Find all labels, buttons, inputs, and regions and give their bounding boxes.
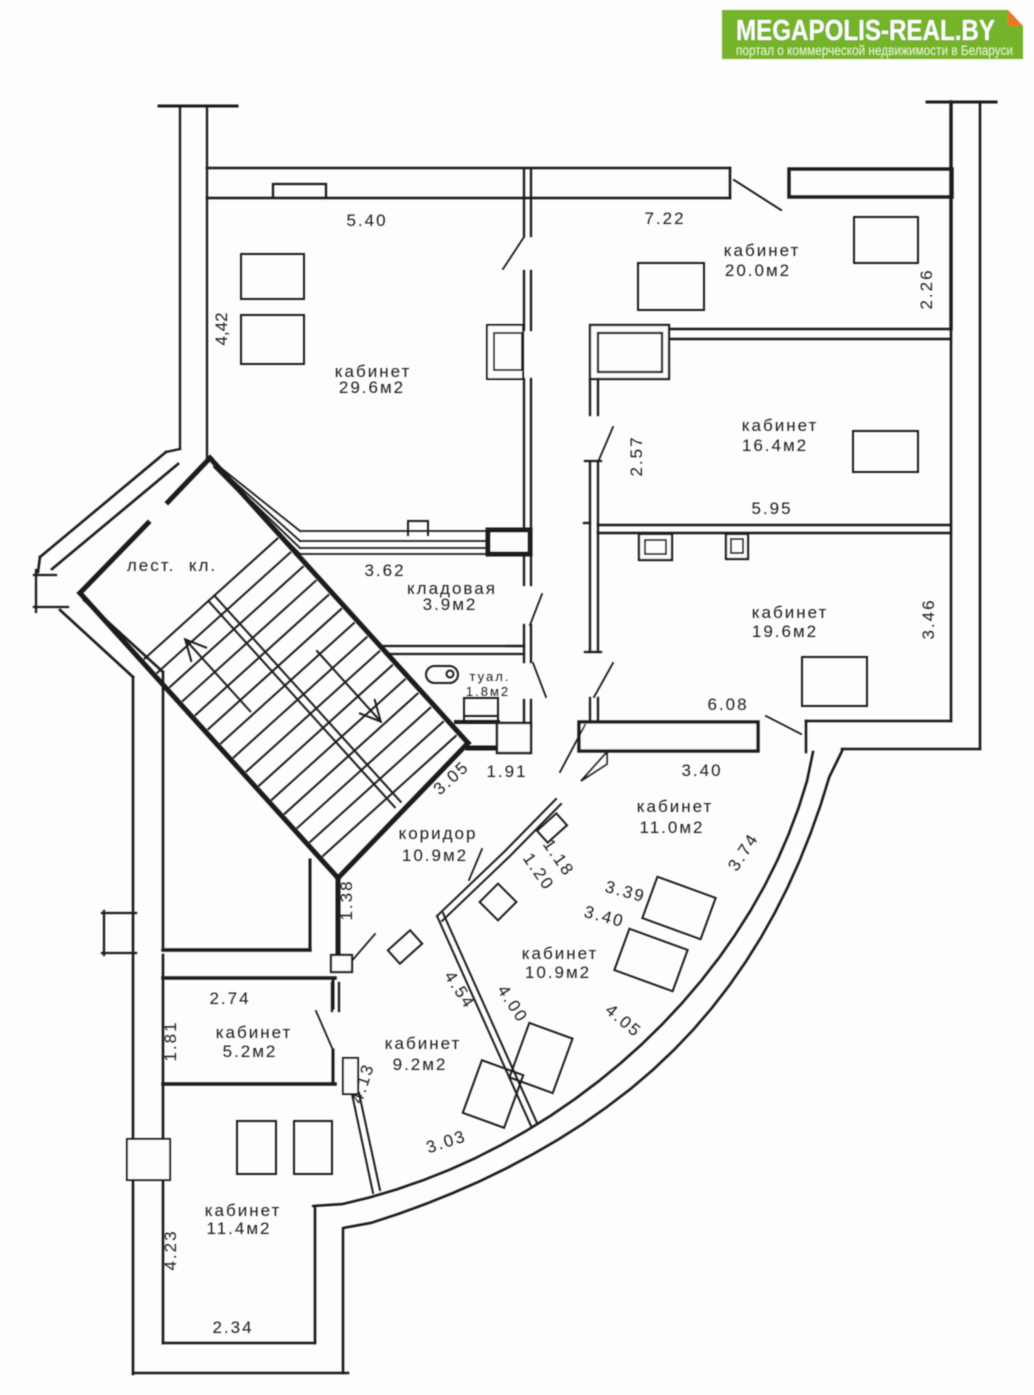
svg-text:20.0м2: 20.0м2 bbox=[725, 261, 791, 280]
svg-text:16.4м2: 16.4м2 bbox=[742, 436, 808, 455]
svg-text:кабинет: кабинет bbox=[742, 416, 819, 435]
svg-text:7.22: 7.22 bbox=[644, 209, 685, 228]
svg-text:1.81: 1.81 bbox=[161, 1020, 180, 1061]
svg-text:1.91: 1.91 bbox=[486, 762, 527, 781]
svg-text:2.26: 2.26 bbox=[917, 268, 936, 309]
svg-text:3.46: 3.46 bbox=[919, 598, 938, 639]
svg-text:2.74: 2.74 bbox=[209, 989, 250, 1008]
svg-text:1.38: 1.38 bbox=[337, 879, 356, 920]
svg-text:кабинет: кабинет bbox=[205, 1201, 282, 1220]
svg-text:портал о коммерческой недвижим: портал о коммерческой недвижимости в Бел… bbox=[736, 43, 1013, 58]
svg-text:коридор: коридор bbox=[399, 824, 478, 843]
svg-text:лест. кл.: лест. кл. bbox=[127, 556, 217, 575]
svg-text:3.40: 3.40 bbox=[681, 761, 722, 780]
svg-text:5.2м2: 5.2м2 bbox=[223, 1042, 278, 1061]
svg-text:кабинет: кабинет bbox=[216, 1023, 293, 1042]
svg-text:10.9м2: 10.9м2 bbox=[402, 846, 468, 865]
svg-text:2.57: 2.57 bbox=[627, 435, 646, 476]
svg-text:кабинет: кабинет bbox=[385, 1034, 462, 1053]
svg-text:10.9м2: 10.9м2 bbox=[525, 963, 591, 982]
svg-text:3.62: 3.62 bbox=[364, 561, 405, 580]
svg-text:2.34: 2.34 bbox=[212, 1318, 253, 1337]
svg-text:19.6м2: 19.6м2 bbox=[752, 622, 818, 641]
svg-text:1.8м2: 1.8м2 bbox=[466, 684, 510, 699]
svg-text:4.23: 4.23 bbox=[161, 1229, 180, 1270]
svg-text:11.0м2: 11.0м2 bbox=[640, 818, 705, 837]
svg-text:6.08: 6.08 bbox=[707, 695, 748, 714]
svg-text:5.95: 5.95 bbox=[751, 499, 792, 518]
svg-text:3.9м2: 3.9м2 bbox=[423, 595, 478, 614]
svg-text:4,42: 4,42 bbox=[212, 312, 231, 345]
svg-text:кабинет: кабинет bbox=[752, 603, 829, 622]
svg-text:29.6м2: 29.6м2 bbox=[339, 378, 405, 397]
svg-text:кабинет: кабинет bbox=[522, 944, 599, 963]
svg-text:туал.: туал. bbox=[470, 669, 511, 684]
svg-text:5.40: 5.40 bbox=[346, 211, 387, 230]
svg-text:кабинет: кабинет bbox=[637, 797, 714, 816]
svg-text:кабинет: кабинет bbox=[724, 241, 801, 260]
svg-text:11.4м2: 11.4м2 bbox=[207, 1219, 272, 1238]
svg-text:9.2м2: 9.2м2 bbox=[393, 1055, 448, 1074]
